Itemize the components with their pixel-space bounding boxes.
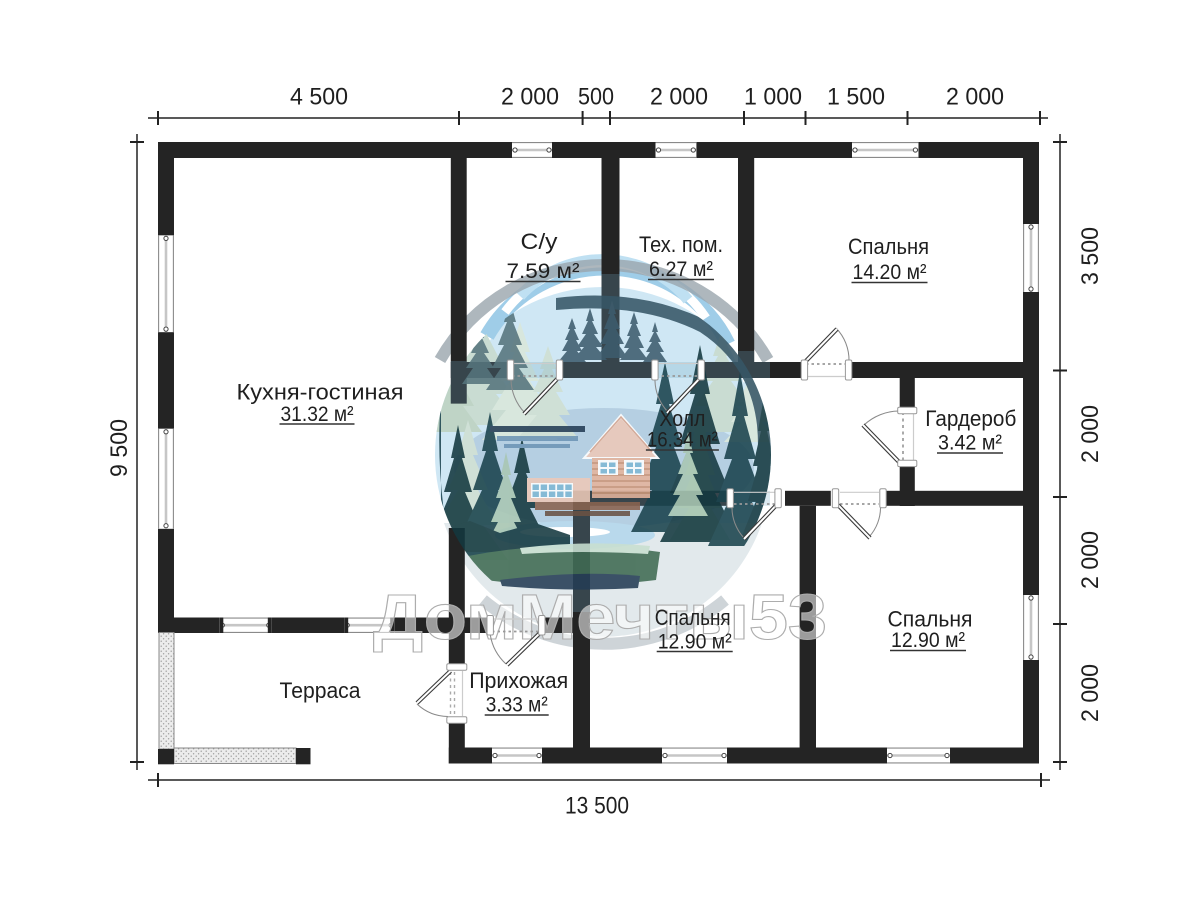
svg-text:500: 500 [578, 84, 614, 111]
svg-text:7.59 м²: 7.59 м² [507, 260, 580, 283]
svg-text:Спальня: Спальня [848, 234, 929, 259]
svg-text:ДомМечты53: ДомМечты53 [373, 581, 827, 653]
svg-text:9 500: 9 500 [106, 419, 133, 477]
svg-text:2 000: 2 000 [501, 84, 559, 111]
svg-text:13 500: 13 500 [565, 793, 629, 820]
svg-text:3 500: 3 500 [1077, 227, 1104, 285]
svg-text:1 000: 1 000 [744, 84, 802, 111]
svg-text:3.42 м²: 3.42 м² [938, 432, 1002, 455]
svg-text:6.27 м²: 6.27 м² [649, 258, 713, 281]
svg-text:12.90 м²: 12.90 м² [891, 629, 965, 652]
svg-text:Кухня-гостиная: Кухня-гостиная [237, 380, 404, 405]
svg-text:14.20 м²: 14.20 м² [853, 261, 927, 284]
svg-text:Холл: Холл [659, 406, 705, 431]
svg-text:12.90 м²: 12.90 м² [658, 631, 732, 654]
svg-text:2 000: 2 000 [946, 84, 1004, 111]
svg-text:Терраса: Терраса [280, 678, 361, 703]
svg-text:1 500: 1 500 [827, 84, 885, 111]
svg-text:Спальня: Спальня [655, 605, 731, 630]
svg-text:3.33 м²: 3.33 м² [486, 694, 548, 717]
svg-text:16.34 м²: 16.34 м² [647, 429, 718, 452]
svg-text:4 500: 4 500 [290, 84, 348, 111]
svg-text:2 000: 2 000 [1077, 664, 1104, 722]
svg-text:2 000: 2 000 [650, 84, 708, 111]
svg-text:2 000: 2 000 [1077, 531, 1104, 589]
svg-text:2 000: 2 000 [1077, 405, 1104, 463]
svg-text:31.32 м²: 31.32 м² [281, 403, 354, 426]
svg-text:С/у: С/у [521, 229, 559, 254]
svg-text:Гардероб: Гардероб [925, 406, 1016, 431]
svg-text:Прихожая: Прихожая [469, 668, 568, 693]
svg-text:Тех. пом.: Тех. пом. [639, 232, 723, 257]
svg-text:Спальня: Спальня [888, 607, 973, 632]
